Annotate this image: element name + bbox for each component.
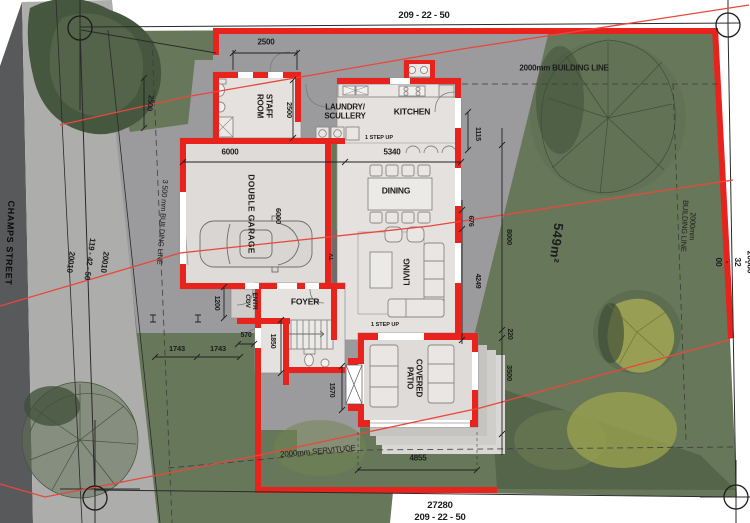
- tree-mid-right-icon: [593, 290, 681, 374]
- site-plan: CHAMPS STREET 209 - 22 - 50 2500 2000mm …: [0, 0, 750, 523]
- kitchen-counter: [338, 84, 456, 97]
- shrub-bottom-middle-icon: [274, 420, 366, 476]
- site-plan-canvas: [0, 0, 750, 523]
- car-icon: [200, 216, 312, 272]
- tree-top-right-icon: [530, 40, 686, 196]
- staircase: [285, 320, 333, 349]
- paving-south-foyer: [258, 373, 297, 430]
